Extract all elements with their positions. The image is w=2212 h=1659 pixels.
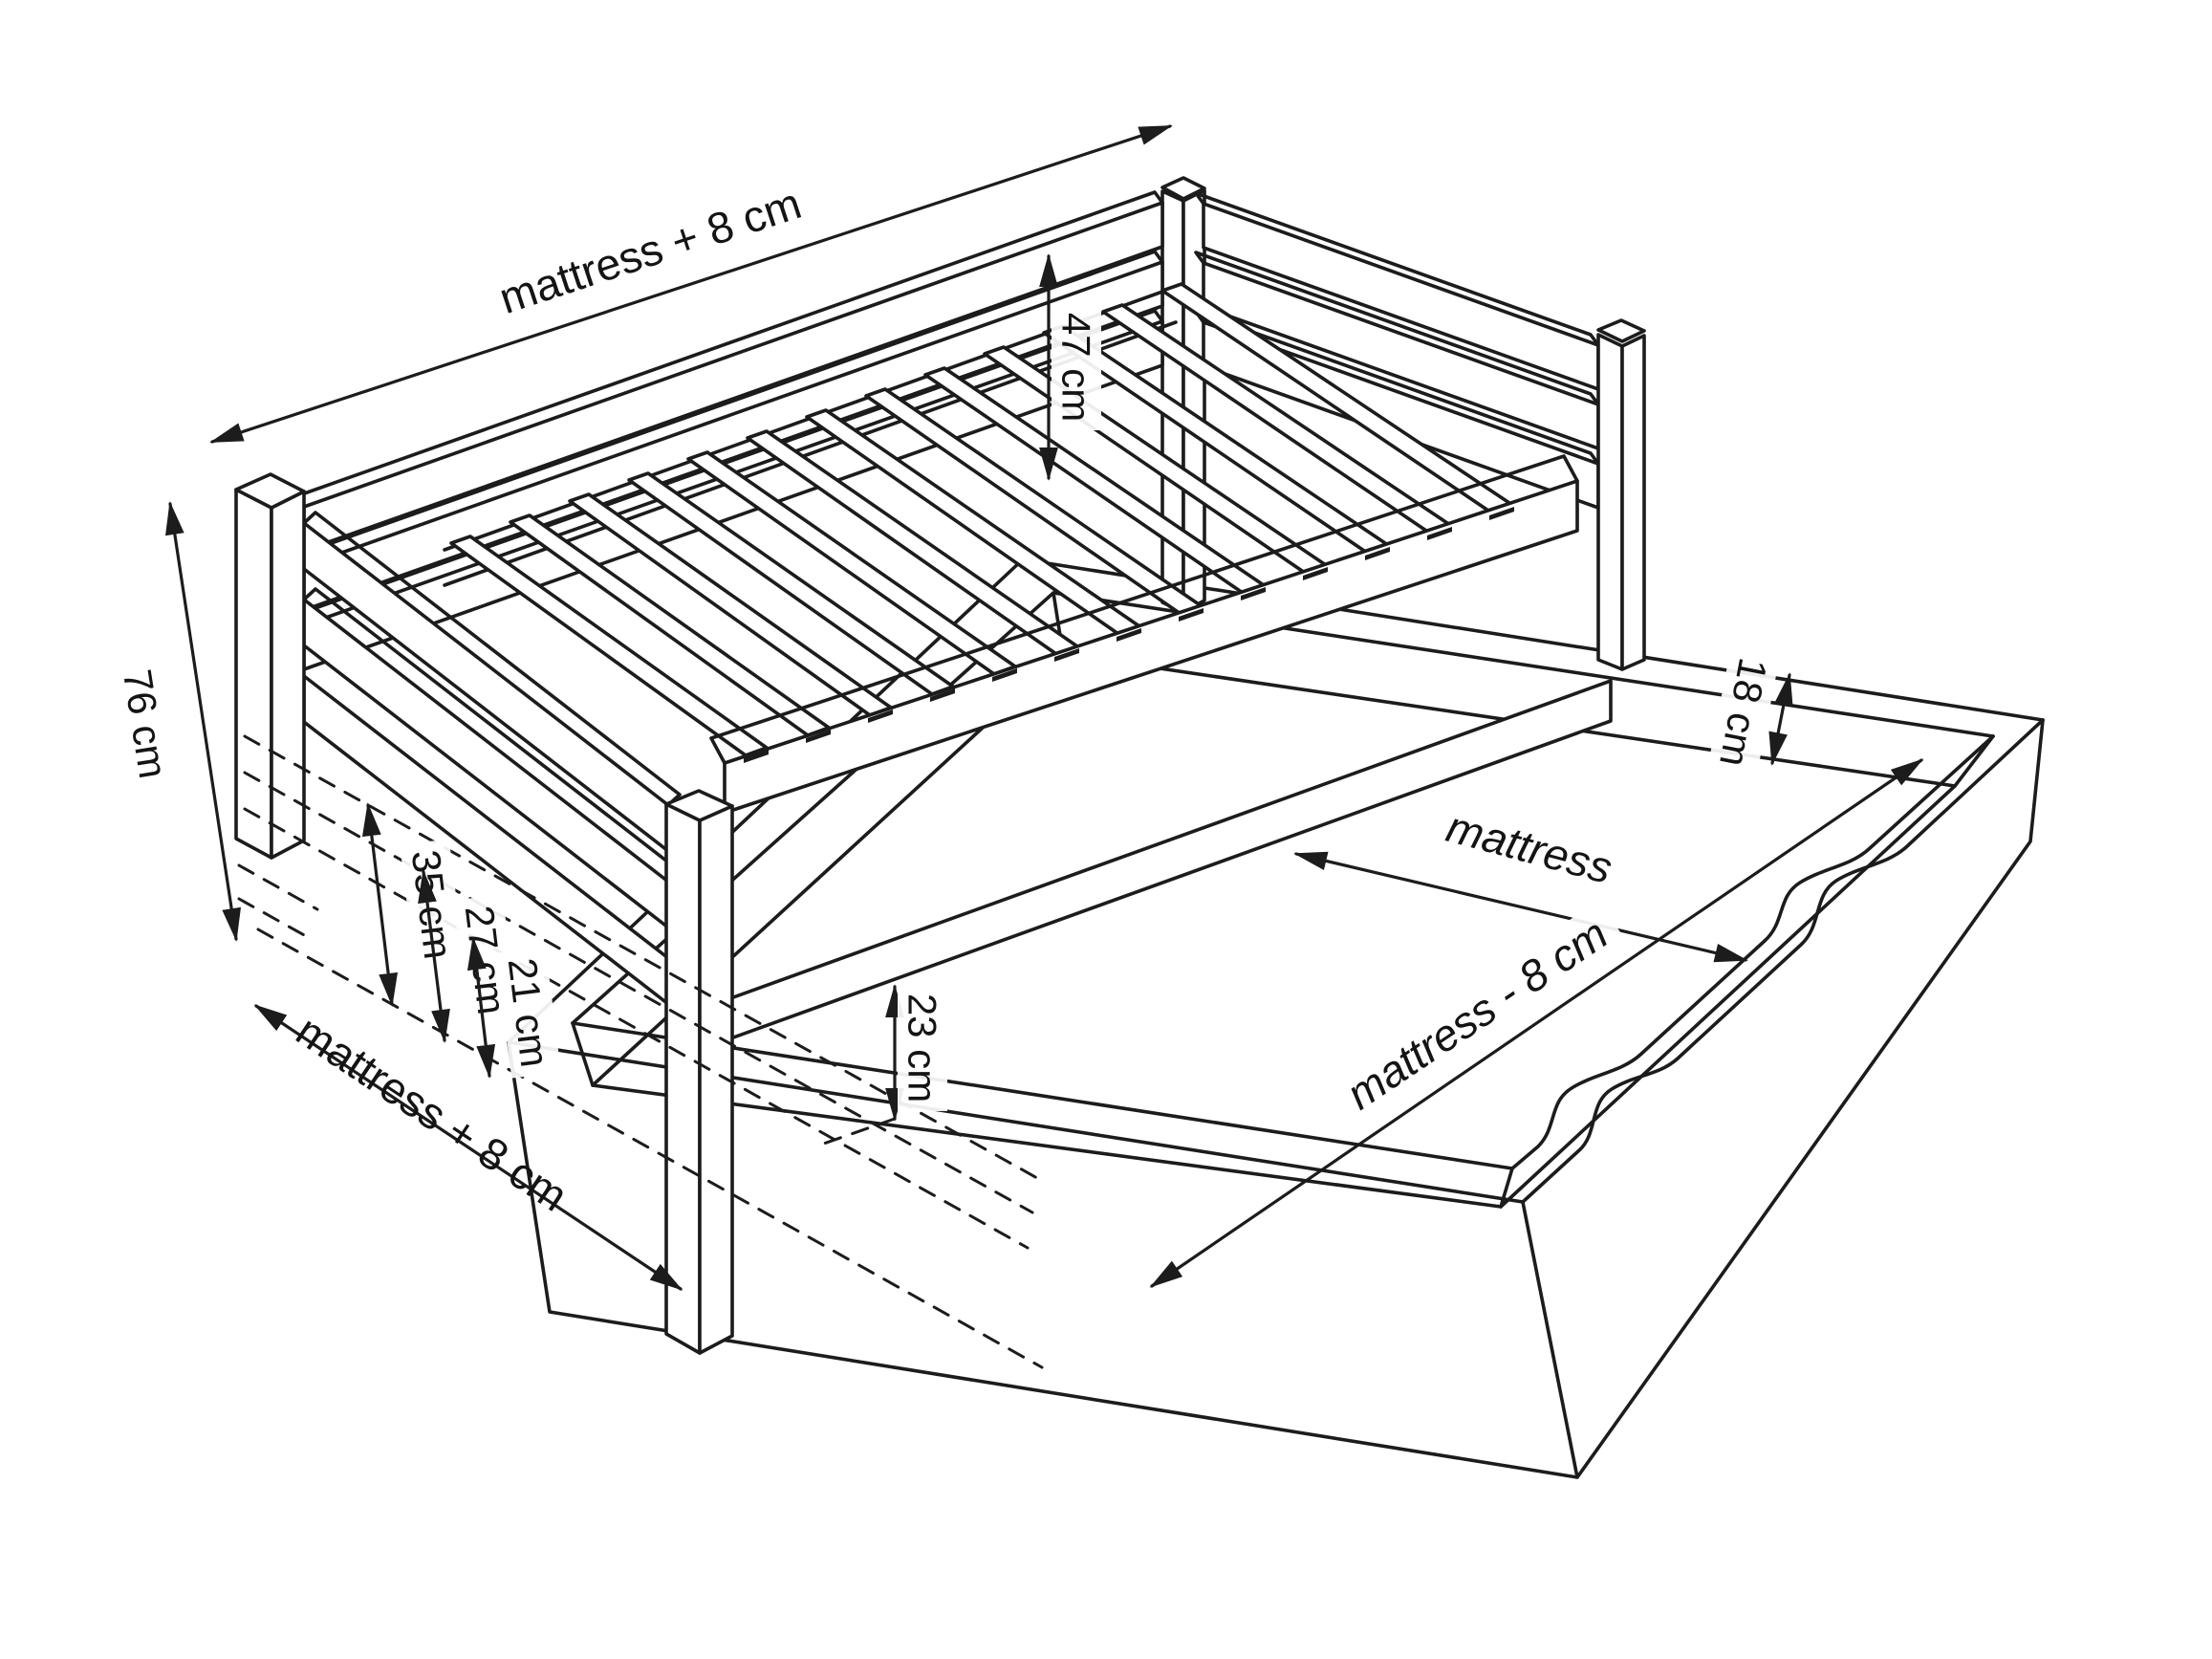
slat (748, 431, 1077, 654)
dim-label-47cm: 47 cm (1054, 313, 1099, 422)
dim-label-21cm: 21 cm (500, 955, 558, 1069)
dim-label-bed-length: mattress + 8 cm (493, 178, 807, 323)
slat (866, 389, 1202, 614)
hidden-post-foot (239, 865, 317, 936)
dim-label-mattress: mattress (1442, 801, 1617, 893)
slat (451, 536, 767, 755)
dim-clearance-23: 23 cm (895, 985, 947, 1119)
dim-label-18cm: 18 cm (1711, 654, 1776, 770)
technical-drawing-bed-with-trundle: mattress + 8 cm 47 cm 76 cm mattress + 8… (0, 0, 2212, 1659)
slat (807, 410, 1139, 634)
slat (570, 494, 891, 715)
dim-bed-height-76: 76 cm (115, 504, 236, 939)
dim-label-23cm: 23 cm (900, 993, 945, 1102)
bed-post-front-foot (666, 791, 732, 1353)
dim-label-76cm: 76 cm (115, 666, 176, 781)
slat (688, 452, 1015, 674)
hidden-drawer-corner (818, 1119, 895, 1146)
bed-post-front-head (1598, 320, 1644, 669)
dim-drawer-width: mattress (1296, 796, 1746, 960)
